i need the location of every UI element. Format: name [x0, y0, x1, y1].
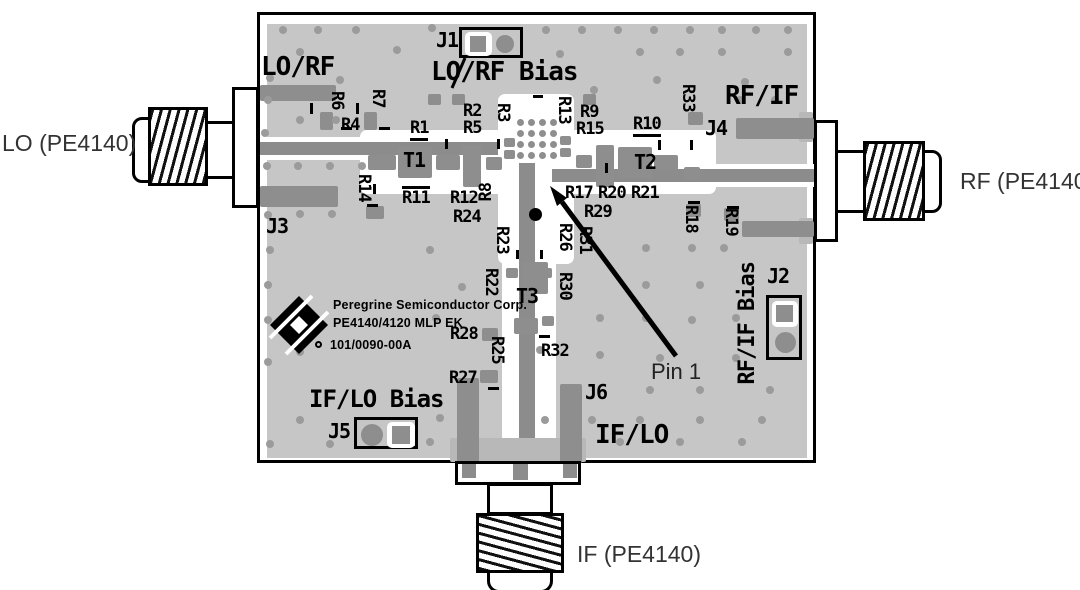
- lo-port-label: LO (PE4140): [2, 130, 136, 157]
- rf-port-label: RF (PE4140): [960, 168, 1080, 195]
- annotation-overlay: [0, 0, 1080, 590]
- pin1-label: Pin 1: [651, 359, 701, 385]
- if-port-label: IF (PE4140): [577, 541, 701, 568]
- evaluation-board-diagram: LO/RF LO/RF Bias RF/IF RF/IF Bias IF/LO …: [0, 0, 1080, 590]
